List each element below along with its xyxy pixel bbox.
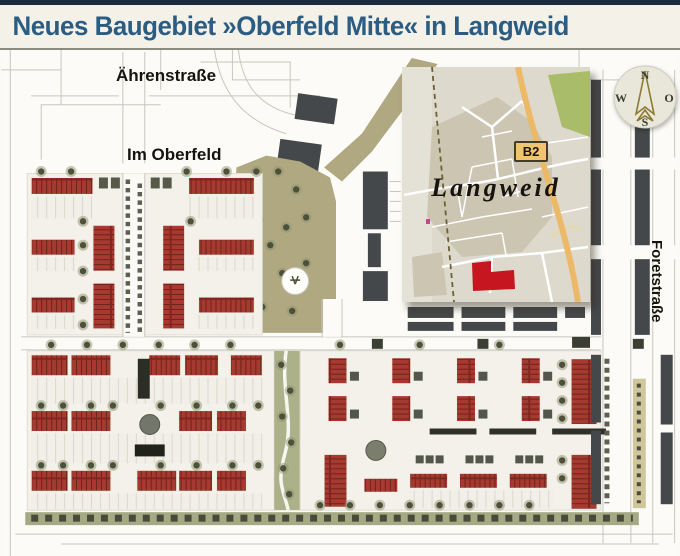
bottom-hedge [25, 512, 639, 525]
street-label-im-oberfeld: Im Oberfeld [127, 145, 221, 165]
left-housing-block [27, 166, 262, 337]
town-label: Langweid [402, 173, 590, 203]
inset-locator-map: B2 Langweid [402, 67, 590, 302]
compass-west-label: W [615, 91, 627, 105]
compass-south-label: S [642, 115, 649, 129]
playground-circle [282, 268, 309, 295]
infographic-page: Neues Baugebiet »Oberfeld Mitte« in Lang… [0, 0, 680, 556]
compass-east-label: O [664, 91, 673, 105]
compass-rose-icon: N W O S [612, 64, 678, 130]
street-label-aehrenstrasse: Ährenstraße [116, 66, 216, 86]
header: Neues Baugebiet »Oberfeld Mitte« in Lang… [0, 5, 680, 50]
page-title: Neues Baugebiet »Oberfeld Mitte« in Lang… [0, 5, 653, 42]
green-path-strip [274, 351, 300, 510]
compass-north-label: N [641, 68, 650, 82]
street-label-foretstrasse: Foretstraße [648, 240, 665, 323]
site-plan: Ährenstraße Im Oberfeld Foretstraße [0, 50, 680, 556]
road-badge-b2: B2 [514, 141, 548, 162]
bottom-left-housing-block [27, 339, 274, 510]
